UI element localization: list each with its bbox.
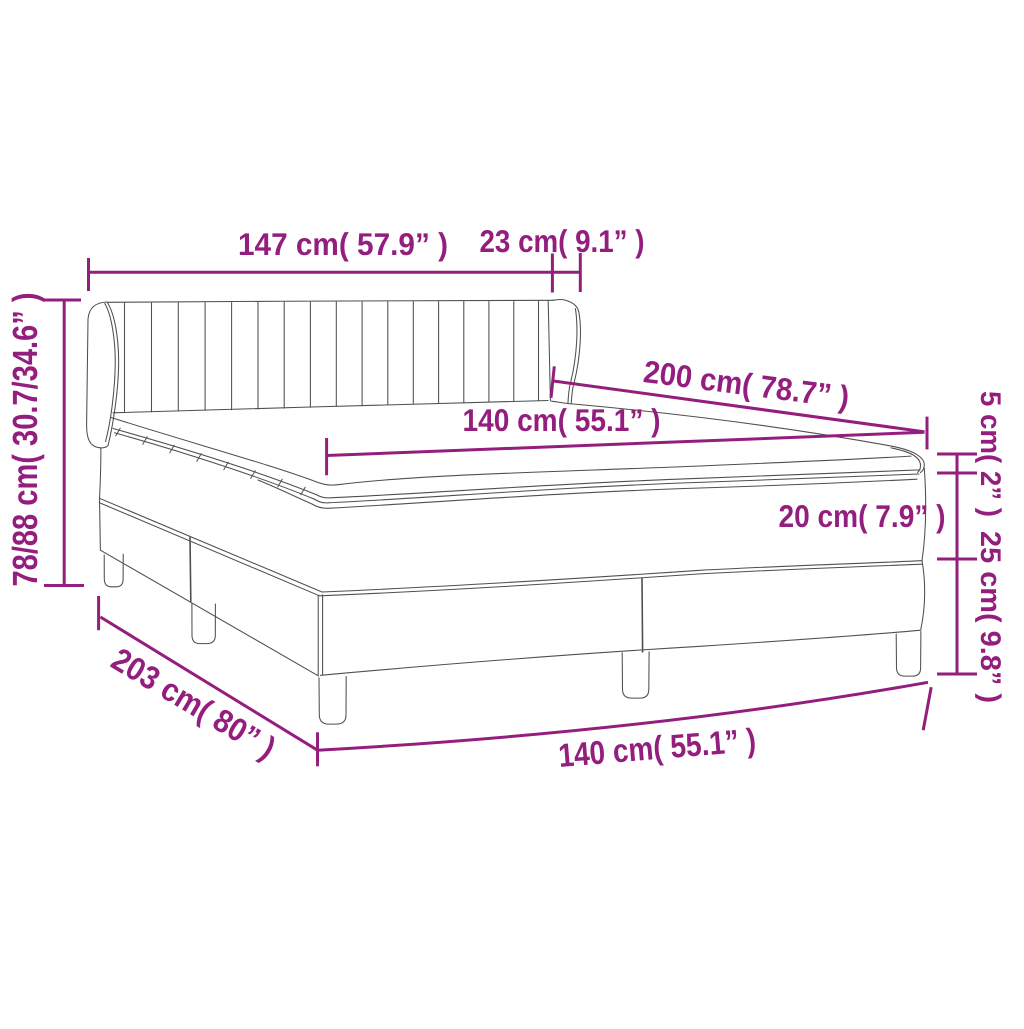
svg-text:23 cm( 9.1” ): 23 cm( 9.1” ) [480,223,645,259]
svg-text:25 cm( 9.8” ): 25 cm( 9.8” ) [974,531,1006,703]
svg-text:78/88 cm( 30.7/34.6” ): 78/88 cm( 30.7/34.6” ) [6,293,45,587]
svg-text:140 cm( 55.1” ): 140 cm( 55.1” ) [463,402,661,438]
svg-text:147 cm( 57.9” ): 147 cm( 57.9” ) [238,226,448,262]
svg-text:20 cm( 7.9” ): 20 cm( 7.9” ) [779,498,946,534]
svg-text:5 cm( 2” ): 5 cm( 2” ) [974,391,1006,517]
